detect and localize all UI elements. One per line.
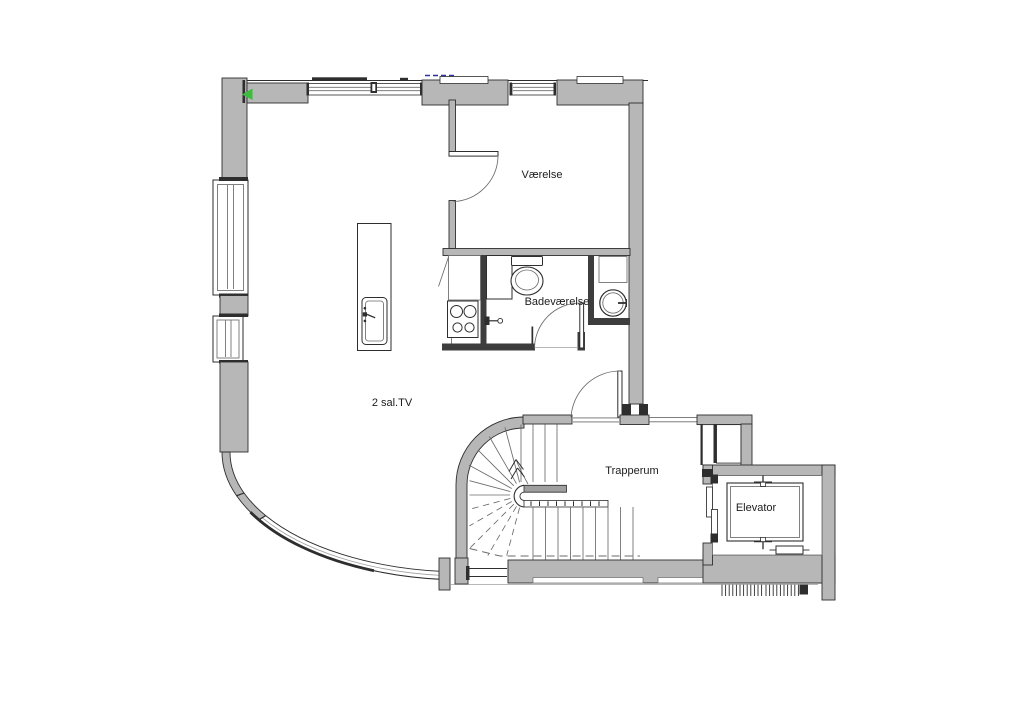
- bathroom-door-swing: [535, 303, 581, 349]
- stair-cut-line: [470, 549, 641, 557]
- bathroom-left-wall: [481, 256, 487, 345]
- balcony-edge-mark: [312, 77, 367, 80]
- kitchen-sink-icon: [362, 298, 387, 345]
- wall-notch: [533, 578, 643, 584]
- vaerelse-label: Værelse: [522, 169, 563, 181]
- handrail-lower: [524, 500, 608, 507]
- winder-treads-dashed: [470, 498, 520, 555]
- kitchen-cabinet: [449, 256, 481, 301]
- counterweight-icon: [770, 546, 810, 554]
- left-wall-lower: [220, 362, 248, 452]
- entry-door-swing: [571, 371, 620, 418]
- bathroom-top-wall: [443, 249, 630, 256]
- badevaerelse-label: Badeværelse: [525, 296, 590, 308]
- curved-wall-segment: [222, 452, 244, 496]
- edge-mark: [400, 78, 408, 81]
- bathroom-bottom-wall: [442, 344, 535, 351]
- living-label: 2 sal.TV: [372, 397, 413, 409]
- left-window-b: [213, 314, 248, 364]
- pier-3-notch: [577, 77, 623, 84]
- duct-shaft: [717, 425, 742, 464]
- vaerelse-door-leaf: [449, 152, 498, 157]
- handrail-u-outer: [514, 485, 524, 507]
- stair-curved-wall: [456, 417, 524, 562]
- bottom-window: [466, 566, 511, 580]
- trapperum-label: Trapperum: [605, 465, 658, 477]
- left-window-a: [213, 177, 248, 298]
- floor-plan-drawing: Værelse Badeværelse 2 sal.TV Trapperum E…: [0, 0, 1024, 724]
- exterior-walls: [213, 76, 648, 453]
- lower-flight-treads: [533, 507, 633, 560]
- entry-door-leaf: [618, 371, 622, 417]
- glass-outer-arc: [259, 520, 445, 580]
- top-wall-pier-1: [247, 83, 308, 103]
- bottom-left-block: [439, 558, 450, 590]
- corner-reveal: [243, 80, 246, 103]
- stair-direction-arrow-icon: [509, 460, 528, 485]
- handrail-u-inner: [520, 492, 524, 500]
- upper-flight-treads: [521, 425, 557, 483]
- hatch-end-cap: [800, 585, 809, 595]
- elevator-shaft: [702, 465, 835, 600]
- compartment-wall-h: [594, 318, 630, 325]
- elevator-label: Elevator: [736, 502, 777, 514]
- curved-wall-segment: [237, 493, 266, 520]
- floor-plan-canvas: Værelse Badeværelse 2 sal.TV Trapperum E…: [0, 0, 1024, 724]
- vaerelse-door-swing: [454, 157, 499, 202]
- pier-2-notch: [440, 77, 488, 84]
- bathroom-cabinet: [599, 257, 627, 283]
- section-hatch: [722, 585, 798, 597]
- handrail-upper: [524, 485, 567, 492]
- curved-glass-facade: [222, 452, 445, 580]
- cabinet-door-swing: [439, 257, 449, 287]
- washbasin-icon: [600, 290, 627, 316]
- bathroom-door-leaf: [580, 303, 584, 348]
- stove-icon: [448, 301, 479, 338]
- left-wall-pier: [220, 296, 248, 317]
- top-window-1: [307, 82, 423, 96]
- shower-valve-icon: [485, 317, 503, 326]
- top-window-2: [510, 83, 557, 96]
- right-wall: [629, 103, 643, 404]
- room-partition-vaerelse: [449, 100, 498, 249]
- elevator-interior: [713, 476, 823, 556]
- spiral-staircase: [469, 425, 640, 560]
- door-jamb: [532, 327, 534, 344]
- toilet-icon: [511, 257, 543, 296]
- shower-cabinet: [487, 256, 513, 300]
- compartment-wall-v: [588, 256, 594, 326]
- kitchen: [358, 224, 481, 351]
